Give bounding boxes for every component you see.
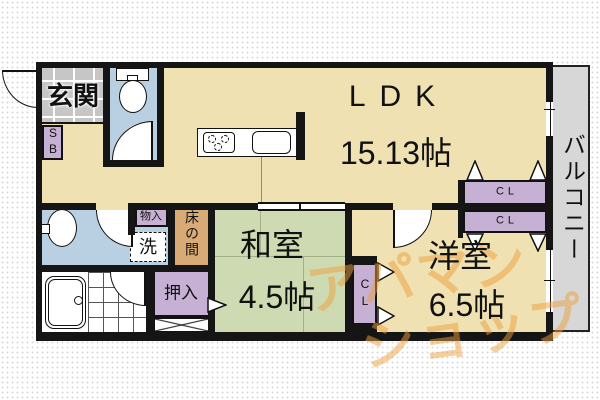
wall-monoire-left — [128, 203, 135, 235]
oshiire-label: 押入 — [164, 285, 198, 302]
wall-left — [36, 62, 42, 340]
wall-mid-b — [133, 203, 258, 210]
ldk-label: LDK — [349, 82, 449, 112]
wall-cl-left-cap — [458, 180, 463, 238]
balcony-label: バルコニー — [561, 133, 584, 263]
shoe-box-label: SB — [47, 126, 59, 158]
ldk-size-label: 15.13帖 — [340, 137, 452, 169]
toilet-bowl — [119, 80, 147, 113]
bifold-up-icon — [466, 160, 484, 181]
floor-divider-line — [261, 157, 262, 203]
stove-burner — [208, 135, 216, 143]
laundry-label: 洗 — [139, 238, 157, 256]
closet-lower-label: CL — [496, 216, 518, 227]
wall-top — [36, 62, 553, 68]
window-mullion — [550, 250, 551, 312]
meter-box — [153, 317, 210, 333]
wall-washroom-bottom — [42, 265, 215, 272]
sliding-door-tick — [299, 204, 301, 209]
wall-genkan-toilet — [103, 62, 110, 167]
floor-plan: 玄関 LDK 15.13帖 和室 4.5帖 洋室 6.5帖 バルコニー 床の間 … — [0, 0, 600, 400]
wall-washitsu-right — [345, 203, 352, 332]
bath-door-knob — [74, 296, 83, 305]
wall-tokonoma-left — [168, 203, 175, 265]
bifold-up-icon — [529, 160, 547, 181]
bifold-right-icon — [377, 262, 395, 282]
wash-basin — [47, 209, 77, 247]
closet-upper-label: CL — [496, 187, 518, 198]
wall-sidecl-top-cap — [350, 256, 377, 265]
sliding-door — [258, 202, 345, 211]
closet-side-label: CL — [359, 277, 371, 311]
entrance-door-arc — [2, 70, 38, 108]
wall-mid-c — [345, 203, 393, 210]
wall-toilet-ldk — [157, 62, 164, 167]
wall-toilet-bottom — [103, 160, 164, 167]
window-tick — [544, 280, 555, 281]
kitchen-sink — [252, 131, 291, 154]
oshiire-door-icon — [207, 297, 227, 313]
stove-burner — [221, 135, 229, 143]
wall-bottom — [36, 332, 553, 341]
genkan-step-edge — [42, 122, 103, 124]
window-youshitsu — [546, 248, 553, 314]
washitsu-size-label: 4.5帖 — [239, 281, 316, 313]
tokonoma-label: 床の間 — [185, 210, 199, 258]
wall-kitchen-peninsula — [296, 112, 305, 160]
window-tick — [544, 109, 555, 110]
bifold-down-icon — [529, 233, 547, 252]
youshitsu-label: 洋室 — [428, 240, 492, 272]
wall-cl-divider — [458, 203, 547, 210]
genkan-label: 玄関 — [47, 83, 99, 109]
monoire-label: 物入 — [140, 212, 162, 223]
youshitsu-size-label: 6.5帖 — [429, 289, 506, 321]
bifold-right-icon — [377, 306, 395, 326]
washitsu-label: 和室 — [240, 229, 304, 261]
window-mullion — [550, 102, 551, 136]
window-ldk — [546, 100, 553, 138]
wash-basin-tap — [41, 224, 50, 234]
wall-bath-right — [146, 272, 154, 332]
wall-mid-a — [36, 203, 96, 210]
wall-sidecl-bottom-cap — [350, 324, 377, 332]
stove-burner — [214, 143, 222, 151]
